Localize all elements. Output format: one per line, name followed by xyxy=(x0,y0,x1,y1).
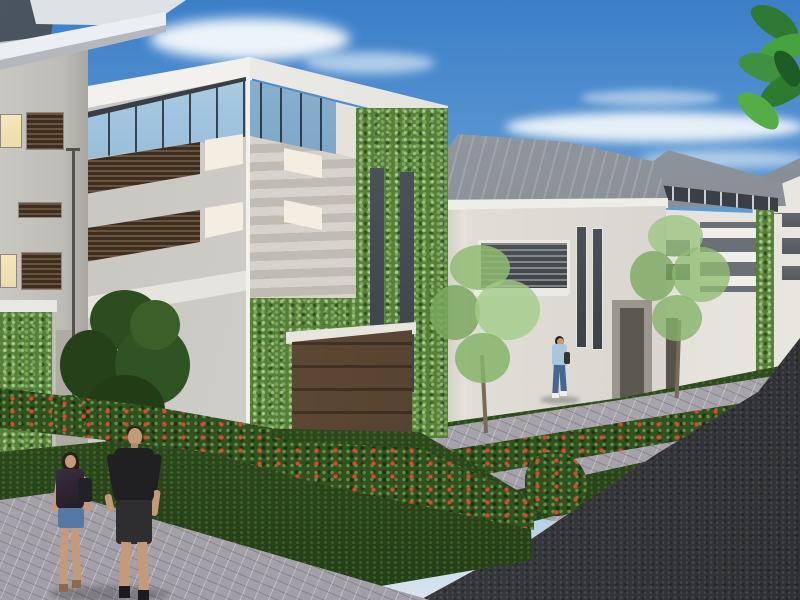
tree-foliage xyxy=(672,247,730,302)
palm-leaves-overhang xyxy=(728,10,800,140)
lamp-post-arm xyxy=(66,148,80,151)
tree-foliage xyxy=(455,333,510,383)
woman-leg-right xyxy=(71,528,82,582)
left-building-louver-blind xyxy=(21,252,62,290)
tree-foliage xyxy=(630,251,676,301)
left-building-louver-blind xyxy=(26,112,64,150)
tree-foliage xyxy=(652,295,702,341)
distant-woman-bag xyxy=(564,352,570,364)
flower-patch xyxy=(52,395,86,435)
distant-woman-shoe xyxy=(560,391,567,396)
man-tshirt xyxy=(114,448,154,502)
woman-head xyxy=(65,455,76,468)
person-distant-woman xyxy=(544,336,576,402)
woman-sandal xyxy=(59,584,68,592)
tree-foliage xyxy=(130,300,180,350)
left-building-lit-window xyxy=(0,114,22,148)
person-woman xyxy=(42,452,106,600)
woman-sandal xyxy=(72,580,81,588)
man-leg-left xyxy=(119,542,131,590)
light-tree xyxy=(430,245,540,435)
distant-woman-shoe xyxy=(552,393,559,398)
left-building-louver-blind xyxy=(18,202,62,218)
man-shorts xyxy=(116,500,152,544)
second-house-slim-window xyxy=(592,228,603,350)
light-tree xyxy=(630,215,730,400)
man-shoe-right xyxy=(138,590,149,600)
flower-bush xyxy=(525,452,587,516)
distant-woman-jeans-leg xyxy=(559,365,567,393)
cloud xyxy=(150,18,350,60)
rendering-canvas xyxy=(0,0,800,600)
woman-shoulder-bag xyxy=(78,478,92,502)
tree-foliage xyxy=(475,280,540,340)
tree-foliage xyxy=(430,285,480,340)
woman-leg-left xyxy=(59,528,69,586)
left-building-lit-window xyxy=(0,254,17,288)
man-shoe-left xyxy=(119,586,130,598)
man-leg-right xyxy=(137,542,149,594)
left-building-white-sill xyxy=(0,300,57,312)
woman-denim-shorts xyxy=(58,508,84,528)
third-house-ivy-strip xyxy=(756,210,774,392)
person-man xyxy=(98,424,172,600)
second-house-slim-window xyxy=(576,226,587,348)
cloud xyxy=(580,90,720,106)
cloud xyxy=(305,52,435,74)
